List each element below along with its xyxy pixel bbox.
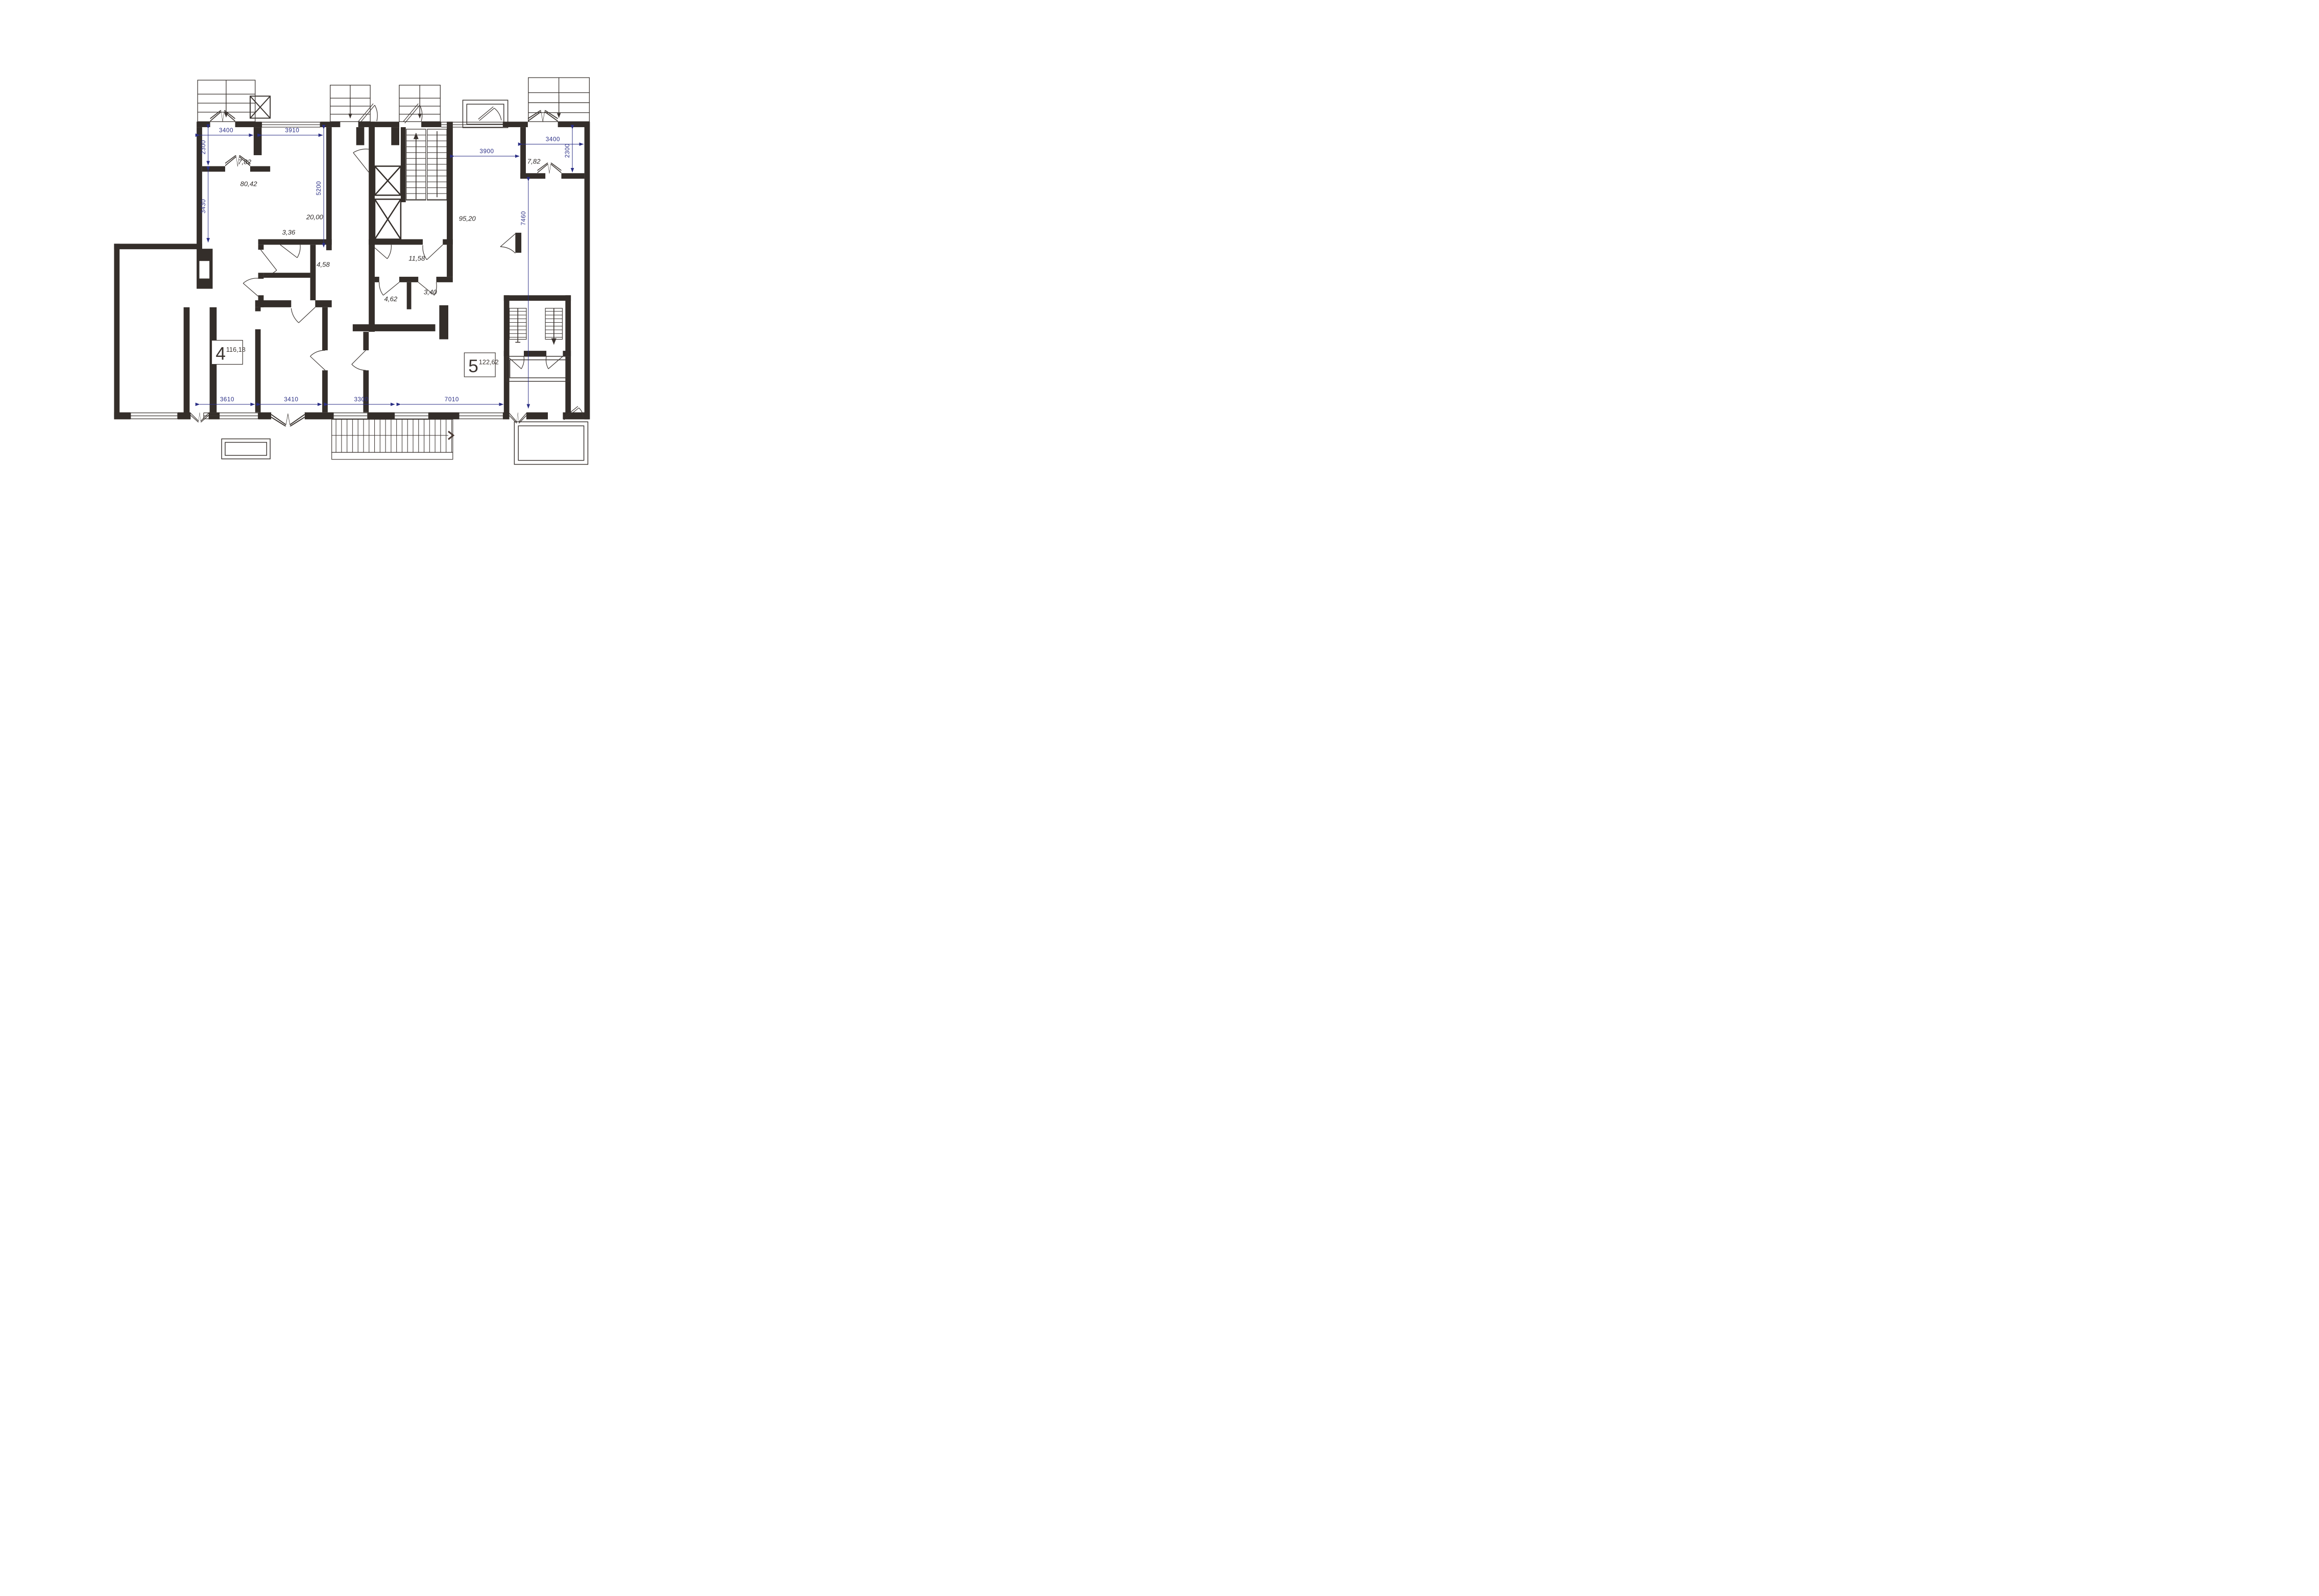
balcony-top-middle-1 [330,85,370,122]
dim-top-middle: 3910 [285,127,299,134]
room-label-living-large: 80,42 [240,180,257,188]
room-label-kitchen: 20,00 [306,213,324,221]
room-label-balcony-left: 7,82 [238,158,251,166]
dim-kitchen-depth: 5200 [316,181,322,196]
room-label-bathroom: 3,36 [282,229,296,236]
porch-bottom-left [222,439,270,459]
dim-right-width: 3400 [546,136,560,143]
dim-top-left: 3400 [219,127,233,134]
dim-right-upper: 2300 [564,143,571,158]
apartment-5-area: 122,62 [479,358,499,366]
stairs-core-top [406,129,447,200]
apartment-4-number: 4 [215,344,226,364]
room-label-hallway-small: 4,58 [317,260,330,268]
room-label-storage: 3,40 [424,288,437,296]
room-label-wc: 4,62 [384,295,397,303]
dim-bottom-3: 3300 [354,396,368,403]
entrance-stairs [332,419,453,459]
room-label-balcony-right: 7,82 [527,158,541,165]
apartment-4-badge: 4 116,18 [212,341,246,365]
apartment-4-area: 116,18 [226,346,246,353]
apartment-5-number: 5 [468,356,478,376]
dim-left-lower: 3430 [200,199,207,213]
walls-layer [114,122,590,419]
dim-bottom-4: 7010 [445,396,459,403]
room-label-corridor: 11,58 [408,255,425,262]
porch-stairwell [506,356,569,381]
room-label-living-right: 95,20 [459,214,476,222]
balcony-top-left [198,80,255,122]
wall-niche [199,261,210,279]
dim-hall-width: 3900 [479,148,494,155]
apartment-5-badge: 5 122,62 [464,353,498,377]
dim-bottom-2: 3410 [284,396,298,403]
landing-bottom-right [514,422,588,464]
porch-top-right [463,100,508,128]
floor-plan-page: 3400 3910 2300 3430 5200 3900 3400 2300 … [0,0,773,532]
dim-left-upper: 2300 [200,140,207,154]
dim-bottom-1: 3610 [220,396,234,403]
stairs-right [510,308,563,345]
dim-right-depth: 7460 [520,211,527,225]
elevator-1-icon [375,166,401,196]
floor-plan-canvas: 3400 3910 2300 3430 5200 3900 3400 2300 … [0,0,773,532]
balcony-top-far-right [528,78,590,122]
balcony-top-middle-2 [399,85,440,122]
elevator-2-icon [375,199,401,239]
shaft-window-icon [250,96,270,118]
